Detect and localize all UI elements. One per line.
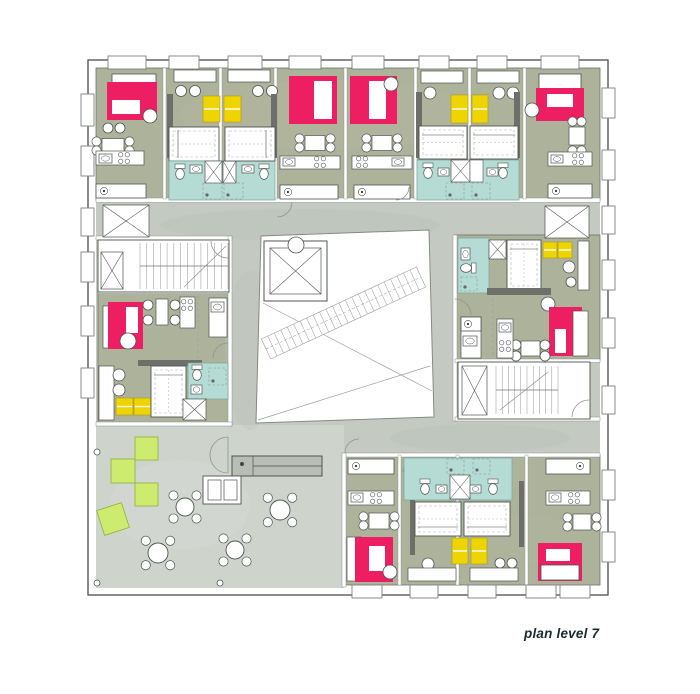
window [289, 56, 321, 69]
u4-cabinet [280, 185, 338, 199]
b4-cabinet [546, 459, 590, 474]
terrace-column [217, 580, 223, 586]
stair-left-shaft [101, 252, 123, 289]
aptA-chair [170, 300, 180, 310]
window [352, 585, 382, 598]
u1-sink [99, 154, 112, 163]
p6-shelf [421, 71, 463, 83]
p6-stool [424, 87, 436, 99]
window [526, 585, 556, 598]
wall-unit [344, 68, 347, 199]
p7-basin [487, 168, 498, 176]
p2p3-duct [223, 161, 236, 183]
window [410, 585, 438, 598]
b2-bed [415, 502, 461, 536]
aptR-cab-dot [461, 317, 481, 331]
aptR-stool [563, 261, 575, 273]
aptR-dining-table [521, 341, 540, 356]
wall-bottom-west [342, 453, 346, 587]
wall-unit [163, 68, 166, 199]
window [352, 56, 384, 69]
terrace-seat [208, 480, 221, 500]
aptR-bed [507, 240, 541, 290]
u8-bed-cushion [547, 94, 573, 107]
b4-headboard [541, 565, 579, 580]
window [602, 318, 615, 348]
u1-cabinet [96, 184, 146, 198]
aptA-chair [143, 315, 153, 325]
b2-wardrobe [410, 500, 415, 555]
aptR-chairs [558, 242, 572, 258]
p6-basin [438, 168, 449, 176]
u5-sink [392, 158, 404, 166]
aptR-sofa-side [573, 311, 588, 356]
b1-cabinet [348, 459, 394, 474]
p7-bed [470, 126, 518, 159]
plan-title: plan level 7 [524, 626, 644, 641]
floor-texture [390, 424, 570, 452]
b1-dining-table [359, 512, 399, 530]
u8-sink [551, 155, 563, 163]
p2-toilet [175, 164, 185, 179]
p6p7-duct-box [470, 160, 483, 182]
p2-basin [190, 165, 202, 173]
window [602, 260, 615, 290]
window [419, 56, 449, 69]
core-column [288, 237, 304, 253]
window [228, 56, 262, 69]
p6p7-duct [451, 160, 470, 182]
terrace-seat [224, 480, 237, 500]
p2-desk-chairs [203, 96, 220, 122]
window [602, 470, 615, 500]
aptA-dining-table [156, 299, 168, 325]
aptA-sofa-cushion [126, 307, 138, 333]
p7-stool [493, 87, 505, 99]
lime-cushion [111, 459, 135, 483]
p3-stool [253, 86, 264, 97]
b2-desk-chairs [452, 538, 468, 564]
b1-coffee-table [383, 565, 397, 579]
aptR-wall-dark [487, 288, 551, 295]
p6-bed [419, 126, 467, 159]
p3-desk-chairs [224, 96, 241, 122]
aptR-stove-sink [499, 323, 511, 332]
b3-stool [507, 558, 517, 568]
aptB-basin [191, 385, 202, 394]
p7-shelf [477, 71, 519, 83]
b4-sofa-cushion [546, 549, 570, 561]
u4-bed-cushion [314, 81, 332, 119]
aptB-toilet [192, 365, 202, 380]
b2-toilet [420, 479, 430, 494]
wall-bottom-north [344, 453, 600, 457]
aptR-basin [461, 248, 470, 260]
b4-dining-table [563, 513, 601, 531]
window [602, 386, 615, 414]
bench-dot [240, 462, 244, 466]
window [108, 56, 146, 69]
b2b3-duct [450, 475, 470, 499]
lime-cushion [135, 483, 158, 506]
p3-bed [225, 127, 275, 161]
u1-stool [103, 123, 113, 133]
aptB-closet [99, 366, 114, 420]
aptR-toilet [461, 263, 476, 273]
aptB-chairs [134, 398, 151, 415]
aptB-stool [113, 369, 125, 381]
aptR-chair [540, 340, 550, 350]
terrace-column [94, 449, 100, 455]
window [541, 56, 579, 69]
wall-unit [398, 455, 401, 585]
aptA-chair [170, 315, 180, 325]
window [169, 56, 199, 69]
shaft-void-left [103, 205, 149, 237]
u5-cabinet [354, 185, 410, 199]
p2p3-duct [205, 161, 222, 183]
u8-cabinet [548, 184, 592, 198]
shaft-void-right [545, 206, 589, 238]
wall-left-south [96, 422, 232, 426]
plan-canvas [0, 0, 700, 694]
b2-shelf [408, 568, 456, 581]
window [81, 306, 94, 336]
elevator-shaft [270, 248, 321, 294]
window [81, 208, 94, 236]
floor-plan-sheet: plan level 7 [0, 0, 700, 694]
aptB-bed [151, 366, 186, 417]
aptR-counter-sink [463, 336, 477, 346]
u8-side-table [525, 103, 539, 117]
aptA-chair [143, 300, 153, 310]
u4-dining-table [295, 134, 335, 152]
b3-shelf [470, 568, 518, 581]
aptR-sofa-cushion [555, 329, 566, 353]
p2-stool [176, 86, 187, 97]
aptR-chair [540, 351, 550, 361]
p7-toilet [498, 163, 508, 178]
window [81, 252, 94, 282]
p2-shelf [174, 70, 216, 82]
aptR-duct [489, 240, 506, 259]
aptR-shelf [578, 241, 589, 290]
aptR-stool [566, 277, 576, 287]
wall-unit [525, 455, 528, 585]
aptA-coffee-table [120, 333, 136, 349]
b3-stool [495, 558, 505, 568]
aptB-chairs [116, 398, 133, 415]
b1-sofa-cushion [369, 546, 385, 571]
window [602, 150, 615, 180]
b3-toilet [488, 479, 498, 494]
aptB-duct [183, 399, 206, 420]
aptB-stool [113, 384, 125, 396]
lime-cushion [135, 437, 158, 460]
terrace-column [94, 580, 100, 586]
window [602, 532, 615, 562]
b3-bed [464, 502, 510, 536]
u8-headboard [539, 74, 581, 89]
p2-stool [190, 86, 201, 97]
b3-basin [470, 485, 481, 493]
window [468, 585, 496, 598]
aptA-sink [211, 302, 224, 312]
p3-toilet [259, 164, 269, 179]
window [81, 368, 94, 398]
p2-bed [169, 127, 219, 161]
u4-sink [283, 158, 295, 166]
window [477, 56, 507, 69]
b1-sink [351, 493, 363, 502]
p7-desk-chairs [472, 95, 488, 123]
window [602, 206, 615, 234]
u1-stool [115, 123, 125, 133]
u5-dining-table [362, 134, 402, 152]
b3-desk-chairs [471, 538, 487, 564]
wall-unit [523, 68, 526, 199]
stair-right-shaft [462, 366, 487, 415]
u5-side-table [384, 77, 398, 91]
u1-bed-cushion [112, 100, 140, 114]
u5-bed-cushion [369, 81, 386, 119]
window [560, 585, 590, 598]
b2-basin [436, 485, 447, 493]
p6-toilet [423, 163, 433, 178]
u1-side-table [143, 109, 157, 123]
u8-dining-table [568, 117, 586, 155]
aptR-chairs [543, 242, 557, 258]
window [81, 94, 94, 126]
p3-shelf [228, 70, 270, 82]
b4-sink [549, 493, 561, 502]
b3-wardrobe [519, 481, 524, 547]
window [602, 88, 615, 118]
p6-desk-chairs [451, 95, 468, 123]
wall-right-west [453, 235, 457, 421]
p3-basin [242, 165, 254, 173]
